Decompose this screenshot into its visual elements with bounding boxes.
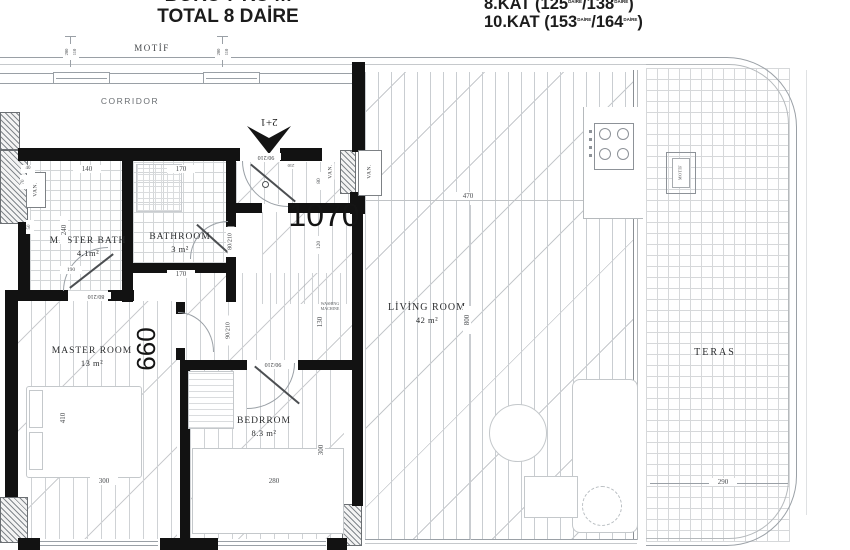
door-tag-hall: 90/210 xyxy=(226,316,233,346)
washing-line-2: MACHINE xyxy=(308,306,352,311)
wall-mbath-bottom-right xyxy=(108,290,134,301)
door-hinge-icon xyxy=(262,181,269,188)
stove-knob-icon xyxy=(589,154,592,157)
door-tag-bedroom: 90/210 xyxy=(258,360,288,367)
wall-left-lower xyxy=(5,290,18,497)
motif-label: MOTİF xyxy=(124,43,180,54)
hall-number: 1070 xyxy=(284,197,364,233)
kat1-sup1: DAİRE xyxy=(568,0,582,4)
dim-living-height: 800 xyxy=(463,306,471,334)
kat1-close: ) xyxy=(628,0,634,13)
room-name: BEDRROM xyxy=(218,416,310,428)
living-dim-line-v xyxy=(470,205,471,540)
master-bath-label: MASTER BATH 4.1m² xyxy=(36,236,140,259)
dim-mb-40: 40 xyxy=(21,165,35,173)
corridor-window-left xyxy=(53,72,110,84)
dim-110-right: 110 xyxy=(223,44,231,60)
wall-mbath-bottom-left xyxy=(18,290,68,301)
kat2-sup2: DAİRE xyxy=(623,17,637,22)
dim-200-left: 200 xyxy=(63,44,71,60)
pillow xyxy=(29,390,43,428)
dim-bath-top: 170 xyxy=(167,165,195,173)
motif-tick-left-top xyxy=(65,36,76,37)
corridor-label: CORRIDOR xyxy=(94,96,166,107)
bedroom-label: BEDRROM 8.3 m² xyxy=(218,416,310,439)
room-name: BATHROOM xyxy=(134,232,226,244)
living-window-b xyxy=(365,543,637,544)
coffee-table xyxy=(524,476,578,518)
kat-line-2: 10.KAT (153DAİRE/164DAİRE) xyxy=(484,13,643,32)
dim-master-width: 300 xyxy=(90,477,118,485)
wall-bottom-stub-3 xyxy=(327,538,347,550)
kat2-close: ) xyxy=(637,13,643,31)
floor-plan: 200 110 200 110 xyxy=(0,0,850,550)
wall-bottom-stub-1 xyxy=(18,538,40,550)
entrance-arrow-icon xyxy=(247,126,291,154)
dim-hall-130: 130 xyxy=(316,308,324,336)
van-label: VAN. xyxy=(33,181,40,199)
door-tag-entrance-width: 210 xyxy=(284,162,298,169)
kat1-text: 8.KAT (125 xyxy=(484,0,568,13)
stove-knob-icon xyxy=(589,138,592,141)
master-bed xyxy=(26,386,142,478)
terrace-marker-label: MOTİF xyxy=(677,165,684,181)
stove-knob-icon xyxy=(589,130,592,133)
corridor-window-right xyxy=(203,72,260,84)
wall-bath-left xyxy=(122,161,133,302)
dim-mb-70: 70 xyxy=(20,175,28,189)
terrace-inner-boundary xyxy=(646,64,789,539)
room-area: 3 m² xyxy=(134,244,226,255)
outer-top-line-2 xyxy=(0,64,655,65)
dim-shaft-120: 120 xyxy=(315,236,323,254)
bottom-window-2a xyxy=(216,541,326,542)
kat2-text: 10.KAT (153 xyxy=(484,13,577,31)
shaft-hatch-bottomleft xyxy=(0,497,28,543)
wall-corridor-living xyxy=(352,62,365,152)
living-window-a xyxy=(365,539,637,540)
bottom-window-2b xyxy=(216,545,326,546)
bottom-window-1b xyxy=(40,545,158,546)
burner-icon xyxy=(599,128,611,140)
wall-bottom-stub-2 xyxy=(160,538,218,550)
margin-line xyxy=(806,70,807,515)
kat2-mid: /164 xyxy=(591,13,623,31)
room-name: MASTER BATH xyxy=(36,236,140,248)
wall-bath-right-upper xyxy=(226,161,236,227)
dim-200-right: 200 xyxy=(215,44,223,60)
terrace-label: TERAS xyxy=(684,347,746,360)
room-area: 8.3 m² xyxy=(218,428,310,439)
stove-icon xyxy=(594,123,634,170)
kat1-mid: /138 xyxy=(582,0,614,13)
door-tag-entrance: 90/210 xyxy=(251,153,281,160)
pillow xyxy=(29,432,43,470)
washing-machine-label: WASHING MACHINE xyxy=(308,301,352,311)
shaft-hatch-topleft-outer xyxy=(0,112,20,150)
wall-bedroom-top-left xyxy=(187,360,247,370)
dim-shaft-80: 80 xyxy=(315,172,323,190)
dining-table xyxy=(489,404,547,462)
dim-bed-width: 280 xyxy=(260,477,288,485)
bottom-window-1a xyxy=(40,541,158,542)
wall-top-main xyxy=(18,148,240,161)
total-daire-title: TOTAL 8 DAİRE xyxy=(128,6,328,28)
wall-central-vertical xyxy=(352,212,363,506)
dim-living-width: 470 xyxy=(454,192,482,200)
burner-icon xyxy=(617,128,629,140)
dim-mb-190: 190 xyxy=(60,266,82,274)
outer-top-line xyxy=(0,57,660,58)
shaft-hatch-entry xyxy=(340,150,356,194)
dim-mb-top: 140 xyxy=(73,165,101,173)
master-room-number: 660 xyxy=(132,317,160,381)
kat-line-1: 8.KAT (125DAİRE/138DAİRE) xyxy=(484,0,634,14)
door-tag-bathroom: 80/210 xyxy=(228,227,235,257)
dim-master-height: 410 xyxy=(59,404,67,432)
dim-mb-height: 240 xyxy=(60,216,68,244)
wall-bedroom-top-right xyxy=(298,360,354,370)
dim-bath-bottom: 170 xyxy=(167,270,195,278)
kat1-sup2: DAİRE xyxy=(614,0,628,4)
dim-terrace-width: 290 xyxy=(709,478,737,486)
burner-icon xyxy=(617,148,629,160)
stove-knob-icon xyxy=(589,146,592,149)
burner-icon xyxy=(599,148,611,160)
room-area: 4.1m² xyxy=(36,248,140,259)
plant-icon xyxy=(582,486,622,526)
kat2-sup1: DAİRE xyxy=(577,17,591,22)
van-label: VAN. xyxy=(367,164,374,180)
dim-110-left: 110 xyxy=(71,44,79,60)
door-tag-master-bath: 80/210 xyxy=(81,292,111,299)
motif-tick-right-top xyxy=(217,36,228,37)
dim-mb-50: 50 xyxy=(26,220,34,234)
dim-bed-height: 300 xyxy=(317,436,325,464)
bathroom-label: BATHROOM 3 m² xyxy=(134,232,226,255)
van-label: VAN. xyxy=(328,164,335,180)
